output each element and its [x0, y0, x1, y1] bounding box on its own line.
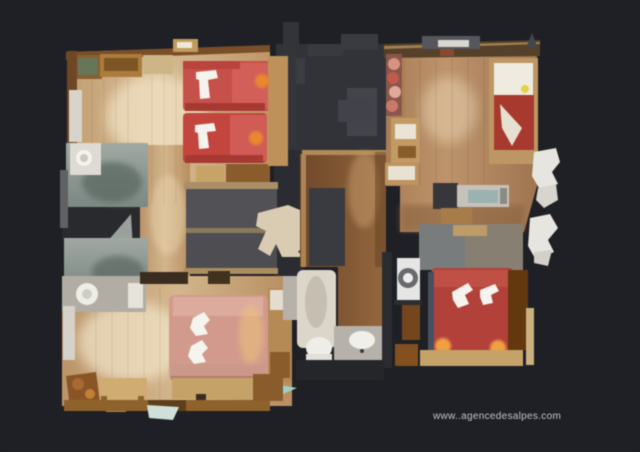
svg-text:www..agencedesalpes.com: www..agencedesalpes.com	[432, 411, 561, 422]
